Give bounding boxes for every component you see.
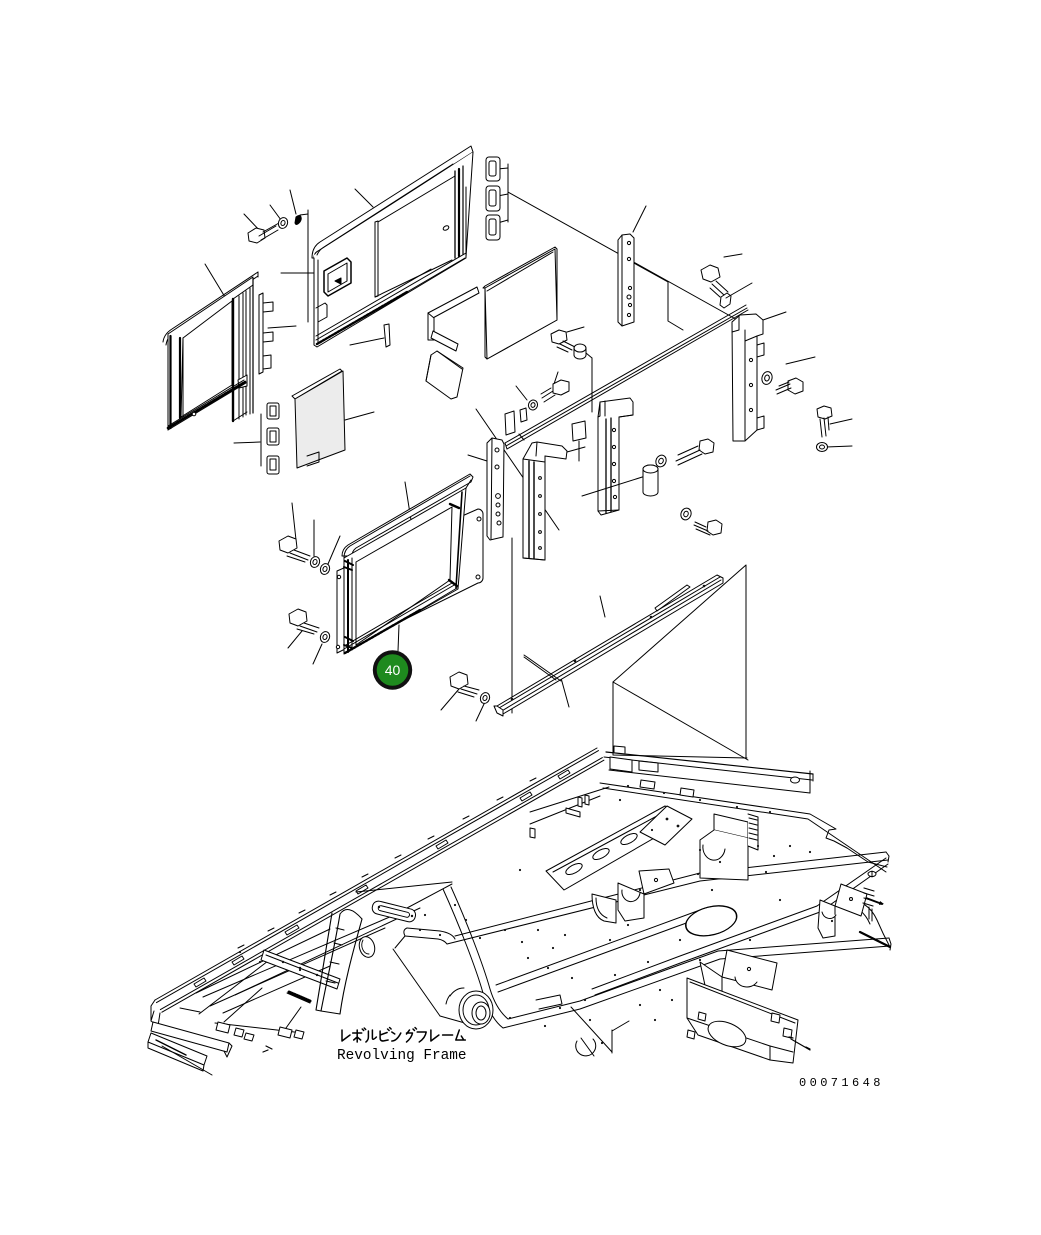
svg-text:00071648: 00071648 — [799, 1076, 884, 1090]
svg-text:Revolving Frame: Revolving Frame — [337, 1048, 467, 1064]
svg-text:40: 40 — [385, 662, 401, 678]
